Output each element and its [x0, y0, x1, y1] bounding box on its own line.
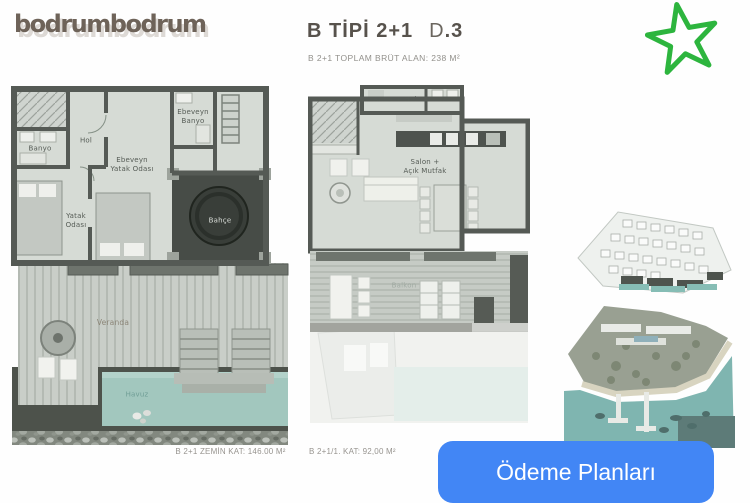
staircase	[312, 101, 358, 143]
ground-floor-caption: B 2+1 ZEMİN KAT: 146.00 M²	[148, 447, 313, 456]
staircase	[14, 89, 68, 129]
veranda-pool-area	[12, 263, 288, 445]
balcony-deck	[310, 251, 528, 323]
page-title: B TİPİ 2+1	[307, 20, 413, 43]
unit-num: .3	[445, 20, 464, 42]
resort-pool	[634, 336, 658, 342]
ground-floor-plan[interactable]: Banyo Hol Ebeveyn Banyo Ebeveyn Yatak Od…	[10, 85, 290, 445]
favorite-star-icon[interactable]	[645, 0, 741, 80]
room-label-havuz: Havuz	[126, 390, 149, 399]
ground-floor-plan-drawing	[10, 85, 290, 445]
unit-prefix: D	[429, 20, 444, 42]
star-outline-shape	[645, 0, 722, 75]
first-floor-plan[interactable]: Antre + Hol WC Salon + Açık Mutfak Balko…	[308, 85, 530, 445]
page-title-row: B TİPİ 2+1 D.3	[307, 20, 463, 43]
room-label-yatak-odasi: Yatak Odası	[66, 212, 87, 230]
gross-area-subtitle: B 2+1 TOPLAM BRÜT ALAN: 238 M²	[308, 53, 460, 63]
room-label-wc: WC	[439, 95, 451, 104]
room-label-salon-acik-mutfak: Salon + Açık Mutfak	[404, 158, 447, 176]
room-label-ebeveyn-banyo: Ebeveyn Banyo	[177, 108, 209, 126]
brand-logo[interactable]: bodrumbodrum	[14, 10, 206, 38]
aerial-beach-photo	[564, 306, 735, 448]
payment-plans-button[interactable]: Ödeme Planları	[438, 441, 714, 503]
sofa	[364, 177, 418, 201]
room-label-veranda: Veranda	[97, 318, 129, 328]
site-plan-3d-render	[578, 212, 731, 293]
room-label-banyo: Banyo	[29, 144, 52, 153]
room-label-bahce: Bahçe	[209, 216, 232, 225]
room-label-ebeveyn-yatak-odasi: Ebeveyn Yatak Odası	[111, 156, 154, 174]
room-label-hol: Hol	[80, 136, 92, 145]
pool-faded	[394, 367, 528, 421]
room-label-balkon: Balkon	[392, 281, 417, 290]
unit-number: D.3	[429, 20, 463, 43]
room-label-antre-hol: Antre + Hol	[373, 95, 416, 104]
site-plan-thumbnail[interactable]	[563, 198, 741, 300]
lower-terrace-faded	[310, 323, 528, 423]
first-floor-plan-drawing	[308, 85, 530, 445]
rooms-area	[14, 89, 271, 264]
first-floor-caption: B 2+1/1. KAT: 92,00 M²	[309, 447, 396, 456]
aerial-view-thumbnail[interactable]	[556, 296, 740, 450]
